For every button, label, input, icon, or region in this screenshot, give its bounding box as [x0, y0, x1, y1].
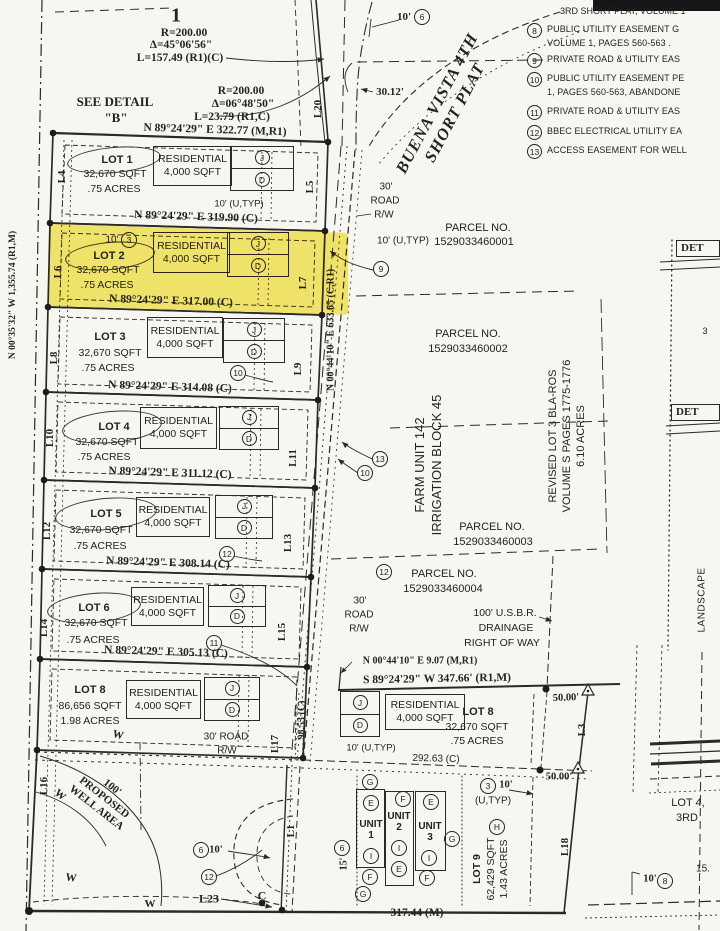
legend-item-9: 9 PRIVATE ROAD & UTILITY EAS [527, 53, 680, 68]
curve2-delta: Δ=06°48'50" [212, 98, 274, 110]
lot3-jd-box: J D [223, 318, 285, 363]
lot4-acres: .75 ACRES [77, 451, 130, 463]
usbr-line2: DRAINAGE [479, 622, 534, 634]
lot4-name: LOT 4 [98, 421, 129, 433]
well-w-mark: W [65, 871, 78, 884]
line-label-l11: L11 [287, 449, 299, 467]
line-label-l5: L5 [304, 181, 316, 194]
e-marker: E [363, 795, 379, 811]
line-label-l4: L4 [56, 171, 68, 184]
well-w-mark: W [145, 898, 156, 910]
legend-num-8: 8 [527, 23, 542, 38]
legend-num-13: 13 [527, 144, 542, 159]
lot5-residential-box: RESIDENTIAL4,000 SQFT [136, 497, 210, 537]
line-label-l9: L9 [292, 363, 304, 376]
j-marker: J [255, 150, 270, 165]
plat-map-page: 1 R=200.00 Δ=45°06'56" L=157.49 (R1)(C) … [0, 0, 720, 931]
lot3-sqft: 32,670 SQFT [78, 347, 141, 359]
lot1-residential-box: RESIDENTIAL4,000 SQFT [153, 146, 232, 186]
dim-10-bottom: 10' [209, 845, 222, 856]
road-rw-30: 30' [379, 182, 392, 193]
j-marker: J [353, 695, 368, 710]
landscape-label: LANDSCAPE [697, 567, 708, 632]
d-marker: D [242, 431, 257, 446]
curve1-delta: Δ=45°06'56" [150, 39, 212, 51]
usbr-line3: RIGHT OF WAY [464, 637, 540, 649]
dim-29263: 292.63 (C) [412, 753, 460, 765]
easement-marker-9: 9 [373, 261, 389, 277]
road-rw-road: ROAD [371, 196, 400, 207]
dim-10-bottom-right: 10' [643, 874, 656, 885]
revised-lot3-label: REVISED LOT 3 BLA-ROS VOLUME S PAGES 177… [546, 360, 588, 513]
detail-b-note: "B" [104, 110, 127, 126]
dim-3012: 30.12' [376, 86, 404, 98]
legend-num-12: 12 [527, 125, 542, 140]
dim-50-a: 50.00' [553, 692, 580, 704]
i-marker: I [363, 848, 379, 864]
road-rw-rw: R/W [374, 210, 393, 221]
g-marker: G [362, 774, 378, 790]
easement-marker-13: 13 [372, 451, 388, 467]
utyp-lot9: (U,TYP) [475, 796, 511, 807]
i-marker: I [421, 850, 437, 866]
sheet-number: 1 [171, 5, 181, 28]
line-label-l15: L15 [276, 623, 288, 641]
line-label-l13: L13 [282, 534, 294, 552]
line-label-l8: L8 [48, 352, 60, 365]
lot5-acres: .75 ACRES [73, 540, 126, 552]
lot3-acres: .75 ACRES [81, 362, 134, 374]
lot1-name: LOT 1 [101, 154, 132, 166]
south-boundary-dim: 317.44 (M) [390, 907, 443, 919]
road2-rw: R/W [349, 624, 368, 635]
parcel1-label: PARCEL NO. [445, 222, 510, 234]
lot9-label: LOT 9 62,429 SQFT 1.43 ACRES [471, 837, 512, 900]
lot4-sqft: 32,670 SQFT [75, 436, 138, 448]
lot5-sqft: 32,670 SQFT [69, 524, 132, 536]
lot1-jd-box: J D [230, 146, 294, 191]
farm-unit-label: FARM UNIT 142 IRRIGATION BLOCK 45 [411, 395, 445, 536]
parcel4-number: 1529033460004 [403, 583, 483, 595]
j-marker: J [242, 410, 257, 425]
lot8w-acres: 1.98 ACRES [61, 715, 120, 727]
f-marker: F [362, 869, 378, 885]
curve2-radius: R=200.00 [218, 85, 264, 97]
unit1-label: UNIT 1 [357, 819, 385, 841]
road2-30: 30' [353, 596, 366, 607]
lot6-jd-box: J D [208, 585, 266, 627]
lot8w-jd-box: J D [204, 677, 260, 721]
g-marker: G [355, 886, 371, 902]
lot4-residential-box: RESIDENTIAL4,000 SQFT [140, 407, 217, 449]
parcel3-number: 1529033460003 [453, 536, 533, 548]
curve2-length: L=23.79 (R1,C) [194, 111, 270, 123]
e-marker: E [391, 861, 407, 877]
easement-marker-6-units: 6 [334, 840, 350, 856]
f-marker: F [419, 870, 435, 886]
easement-marker-6-top: 6 [414, 9, 430, 25]
line-label-l10: L10 [44, 429, 56, 447]
see-detail-note: SEE DETAIL [77, 94, 154, 110]
d-marker: D [230, 609, 245, 624]
unit2-label: UNIT 2 [385, 811, 413, 833]
curve1-radius: R=200.00 [161, 27, 207, 39]
road2-road: ROAD [345, 610, 374, 621]
i-marker: I [391, 840, 407, 856]
legend-num-9: 9 [527, 53, 542, 68]
curve-label-c: C [258, 889, 267, 904]
lot8-jog-bearing: N 00°44'10" E 9.07 (M,R1) [363, 656, 478, 667]
dim-15ft: 15' [339, 858, 350, 871]
line-label-l1: L1 [285, 825, 297, 838]
legend-item-8: 8 PUBLIC UTILITY EASEMENT GVOLUME 1, PAG… [527, 23, 679, 50]
line-label-l14: L14 [38, 619, 50, 637]
f-marker: F [395, 791, 411, 807]
easement-marker-3-lot9: 3 [480, 778, 496, 794]
lot8w-sqft: 86,656 SQFT [58, 700, 121, 712]
lot1-utyp-note: 10' (U,TYP) [214, 199, 263, 210]
parcel2-label: PARCEL NO. [435, 328, 500, 340]
frag-15: 15. [696, 864, 710, 875]
easement-marker-12-bottom: 12 [201, 869, 217, 885]
lot8-south-bearing: S 89°24'29" W 347.66' (R1,M) [363, 672, 511, 687]
lot2-highlight [49, 224, 348, 315]
lot8e-acres: .75 ACRES [450, 735, 503, 747]
lot8e-name: LOT 8 [462, 706, 493, 718]
legend-item-11: 11 PRIVATE ROAD & UTILITY EAS [527, 105, 680, 120]
lot5-name: LOT 5 [90, 508, 121, 520]
j-marker: J [230, 588, 245, 603]
d-marker: D [247, 344, 262, 359]
lot8w-residential-box: RESIDENTIAL4,000 SQFT [126, 680, 201, 719]
lot5-jd-box: J D [215, 495, 273, 539]
e-marker: E [423, 794, 439, 810]
j-marker: J [237, 499, 252, 514]
g-marker: G [444, 831, 460, 847]
utyp-10-east: 10' (U,TYP) [377, 236, 429, 247]
lot8w-rw-label: R/W [217, 746, 236, 757]
lot4-jd-box: J D [219, 406, 279, 450]
usbr-line1: 100' U.S.B.R. [473, 607, 536, 619]
line-label-l12: L12 [41, 522, 53, 540]
lot1-acres: .75 ACRES [87, 183, 140, 195]
parcel3-label: PARCEL NO. [459, 521, 524, 533]
d-marker: D [255, 172, 270, 187]
curve1-length: L=157.49 (R1)(C) [137, 52, 223, 64]
lot3-name: LOT 3 [94, 331, 125, 343]
easement-marker-8-bottom: 8 [657, 873, 673, 889]
line-label-l17: L17 [269, 735, 281, 753]
line-label-l23: L23 [199, 892, 219, 907]
legend-item-10: 10 PUBLIC UTILITY EASEMENT PE1, PAGES 56… [527, 72, 684, 99]
lot8w-name: LOT 8 [74, 684, 105, 696]
parcel2-number: 1529033460002 [428, 343, 508, 355]
dim-9853: 98.53 (C) [297, 701, 308, 740]
dim-10-lot9: 10' [499, 780, 512, 791]
legend-num-11: 11 [527, 105, 542, 120]
lot8w-road-label: 30' ROAD [204, 732, 249, 743]
d-marker: D [353, 718, 368, 733]
frag-3: 3 [702, 326, 707, 336]
h-marker: H [489, 819, 505, 835]
line-label-l20: L20 [312, 100, 324, 118]
j-marker: J [247, 322, 262, 337]
west-boundary-bearing: N 00°35'32" W 1,355.74 (R1,M) [8, 231, 18, 359]
line-label-l16: L16 [38, 777, 50, 795]
frag-lot4: LOT 4, [671, 797, 704, 809]
lot6-name: LOT 6 [78, 602, 109, 614]
detail-box-2: DET [671, 404, 720, 421]
lot8e-jd-box: J D [340, 691, 380, 737]
legend-heading: 3RD SHORT PLAT, VOLUME 1 [560, 6, 720, 16]
lot8e-utyp: 10' (U,TYP) [346, 743, 395, 754]
legend-item-13: 13 ACCESS EASEMENT FOR WELL [527, 144, 687, 159]
lot6-residential-box: RESIDENTIAL4,000 SQFT [131, 587, 204, 626]
j-marker: J [225, 681, 240, 696]
legend-item-12: 12 BBEC ELECTRICAL UTILITY EA [527, 125, 682, 140]
d-marker: D [225, 702, 240, 717]
d-marker: D [237, 520, 252, 535]
lot1-sqft: 32,670 SQFT [83, 168, 146, 180]
line-label-l3: L3 [576, 724, 588, 737]
parcel1-number: 1529033460001 [434, 236, 514, 248]
unit3-label: UNIT 3 [416, 821, 444, 843]
detail-box-1: DET [676, 240, 720, 257]
dim-10ft-top: 10' [397, 11, 411, 23]
frag-3rd: 3RD [676, 812, 698, 824]
lot3-residential-box: RESIDENTIAL4,000 SQFT [147, 317, 223, 358]
easement-marker-12-parcel4: 12 [376, 564, 392, 580]
lot6-sqft: 32,670 SQFT [64, 617, 127, 629]
dim-50-b: 50.00' [546, 772, 573, 783]
lot8e-sqft: 32,670 SQFT [445, 721, 508, 733]
parcel4-label: PARCEL NO. [411, 568, 476, 580]
legend-num-10: 10 [527, 72, 542, 87]
easement-marker-10-road: 10 [357, 465, 373, 481]
line-label-l18: L18 [559, 838, 571, 856]
easement-marker-6-bottom: 6 [193, 842, 209, 858]
easement-marker-10-lot3: 10 [230, 365, 246, 381]
